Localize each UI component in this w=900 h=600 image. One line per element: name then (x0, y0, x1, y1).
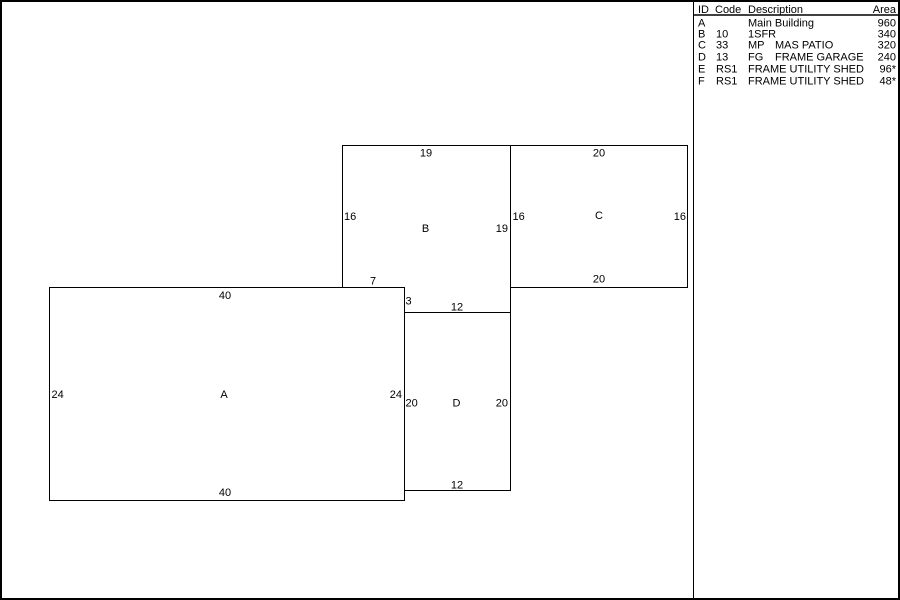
svg-text:MP: MP (748, 40, 765, 52)
svg-text:MAS PATIO: MAS PATIO (775, 40, 834, 52)
svg-text:13: 13 (716, 52, 728, 64)
svg-text:33: 33 (716, 40, 728, 52)
svg-text:E: E (698, 64, 705, 76)
svg-text:FRAME GARAGE: FRAME GARAGE (775, 52, 864, 64)
svg-text:C: C (698, 40, 706, 52)
svg-text:20: 20 (593, 148, 605, 160)
svg-text:40: 40 (219, 487, 231, 499)
svg-text:12: 12 (451, 480, 463, 492)
svg-text:24: 24 (52, 389, 64, 401)
svg-text:240: 240 (878, 52, 896, 64)
svg-text:FRAME UTILITY SHED: FRAME UTILITY SHED (748, 76, 864, 88)
svg-text:FG: FG (748, 52, 763, 64)
svg-text:16: 16 (344, 211, 356, 223)
svg-text:24: 24 (390, 389, 402, 401)
svg-text:96*: 96* (879, 64, 896, 76)
svg-text:RS1: RS1 (716, 76, 737, 88)
svg-text:40: 40 (219, 290, 231, 302)
svg-text:FRAME UTILITY SHED: FRAME UTILITY SHED (748, 64, 864, 76)
svg-text:3: 3 (406, 296, 412, 308)
svg-text:16: 16 (513, 211, 525, 223)
svg-text:20: 20 (406, 398, 418, 410)
svg-text:12: 12 (451, 302, 463, 314)
svg-text:7: 7 (370, 276, 376, 288)
svg-text:C: C (595, 210, 603, 222)
svg-text:19: 19 (496, 223, 508, 235)
svg-text:F: F (698, 76, 705, 88)
svg-text:20: 20 (593, 274, 605, 286)
svg-text:D: D (453, 398, 461, 410)
svg-text:D: D (698, 52, 706, 64)
svg-text:19: 19 (420, 148, 432, 160)
svg-text:RS1: RS1 (716, 64, 737, 76)
svg-text:16: 16 (674, 211, 686, 223)
svg-text:20: 20 (496, 398, 508, 410)
svg-text:B: B (422, 223, 429, 235)
svg-text:A: A (220, 389, 228, 401)
svg-text:48*: 48* (879, 76, 896, 88)
svg-text:320: 320 (878, 40, 896, 52)
